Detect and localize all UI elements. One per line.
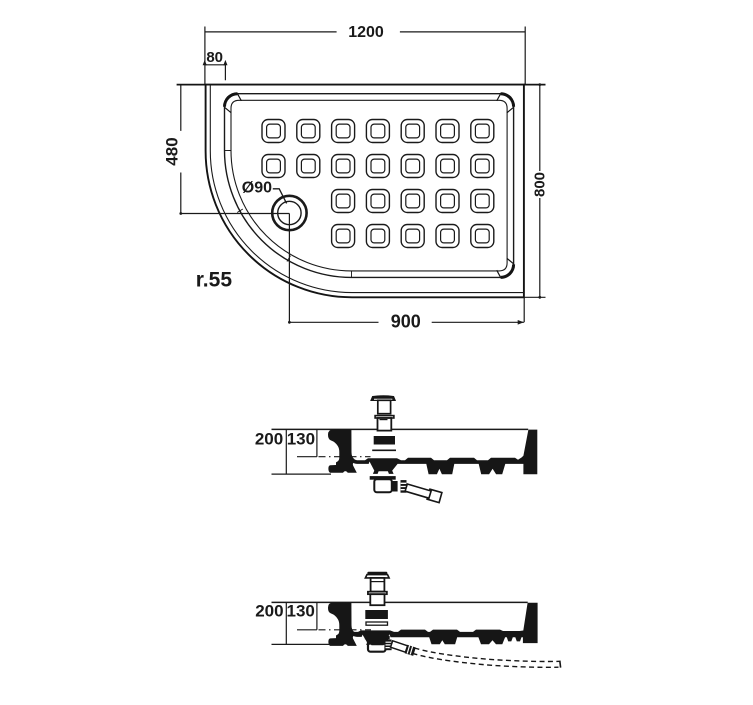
- svg-text:900: 900: [391, 312, 421, 332]
- svg-text:80: 80: [206, 49, 223, 66]
- svg-text:200: 200: [255, 429, 283, 448]
- svg-text:800: 800: [532, 172, 549, 197]
- svg-text:130: 130: [287, 601, 315, 620]
- svg-text:1200: 1200: [348, 24, 384, 41]
- svg-text:r.55: r.55: [196, 268, 233, 291]
- svg-text:480: 480: [162, 137, 181, 165]
- svg-text:130: 130: [287, 429, 315, 448]
- svg-text:200: 200: [255, 601, 283, 620]
- svg-text:Ø90: Ø90: [242, 180, 272, 197]
